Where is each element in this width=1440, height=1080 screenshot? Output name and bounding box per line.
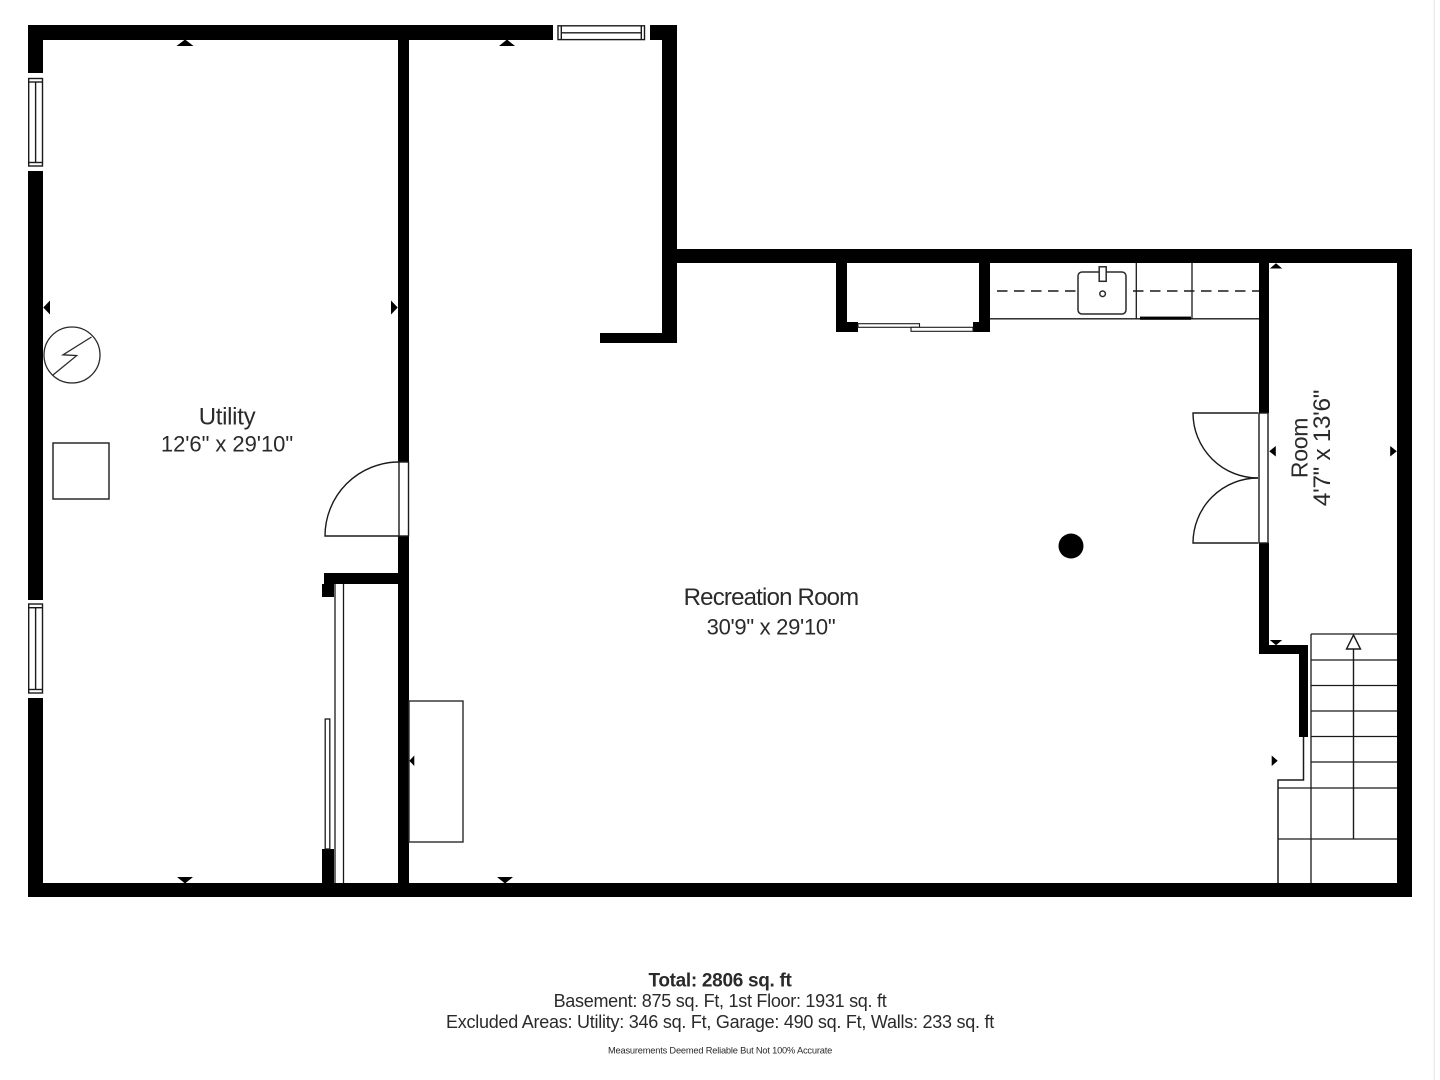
svg-text:30'9" x 29'10": 30'9" x 29'10" — [707, 615, 836, 640]
svg-text:Excluded Areas: Utility: 346 s: Excluded Areas: Utility: 346 sq. Ft, Gar… — [446, 1012, 994, 1032]
svg-text:12'6" x 29'10": 12'6" x 29'10" — [161, 431, 293, 456]
svg-text:Basement: 875 sq. Ft, 1st Floo: Basement: 875 sq. Ft, 1st Floor: 1931 sq… — [554, 991, 887, 1011]
svg-text:Recreation Room: Recreation Room — [684, 584, 859, 611]
svg-text:Total: 2806 sq. ft: Total: 2806 sq. ft — [648, 970, 792, 991]
svg-text:4'7" x 13'6": 4'7" x 13'6" — [1309, 390, 1336, 506]
svg-text:Measurements Deemed Reliable B: Measurements Deemed Reliable But Not 100… — [608, 1046, 832, 1056]
svg-text:Utility: Utility — [199, 403, 256, 430]
